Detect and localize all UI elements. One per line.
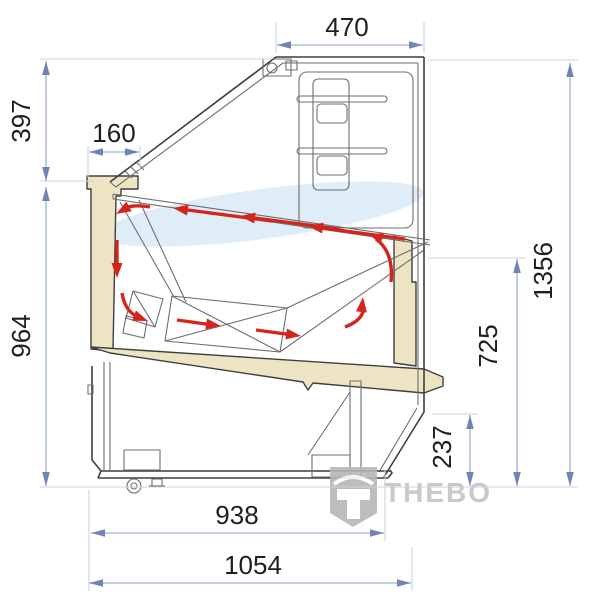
case-outline — [88, 57, 430, 493]
dim-upper-front-height-label: 397 — [6, 99, 36, 142]
airflow-arrow — [345, 296, 368, 327]
base-step-left — [124, 450, 160, 470]
watermark-t-stem — [347, 500, 360, 519]
support-brace — [308, 392, 350, 455]
airflow-arrow — [256, 328, 302, 341]
watermark-t-bar — [337, 489, 370, 500]
dim-front-ledge-label: 160 — [92, 118, 135, 148]
leveling-foot — [149, 479, 165, 486]
dim-total-depth-label: 1054 — [224, 550, 282, 580]
airflow-arrow — [177, 318, 222, 331]
dim-rear-worktop-height: 725 — [473, 259, 521, 486]
tub-rear-wall — [394, 236, 416, 366]
diagram-page: THEBO 470 397 — [0, 0, 600, 600]
shelf-bracket-box — [317, 104, 347, 123]
tub-bottom-slab — [91, 347, 443, 393]
dim-top-width: 470 — [277, 12, 423, 49]
glass-lid-inner — [116, 63, 283, 187]
dim-base-depth-label: 938 — [215, 500, 258, 530]
dim-total-height: 1356 — [528, 63, 574, 486]
fan-unit — [123, 291, 163, 338]
glass-tint — [97, 168, 427, 260]
shelf-bracket-bar — [297, 96, 387, 102]
dim-lower-front-height-label: 964 — [6, 314, 36, 357]
shelf-bracket-box — [317, 156, 347, 175]
evaporator-coil — [165, 296, 287, 352]
display-case-diagram: THEBO 470 397 — [0, 0, 600, 600]
dim-front-ledge: 160 — [89, 118, 139, 156]
dim-total-depth: 1054 — [89, 550, 411, 587]
watermark-brand-text: THEBO — [384, 477, 492, 508]
extension-lines — [40, 22, 578, 591]
dim-top-width-label: 470 — [325, 12, 368, 42]
support-post — [350, 381, 361, 477]
dim-rear-recess-height: 237 — [427, 415, 474, 486]
dim-rear-worktop-height-label: 725 — [473, 324, 503, 367]
dim-total-height-label: 1356 — [528, 242, 558, 300]
shelf-bracket-bar — [297, 148, 387, 154]
dim-rear-recess-height-label: 237 — [427, 425, 457, 468]
caster-wheel — [127, 479, 141, 493]
dim-lower-front-height: 964 — [6, 187, 50, 486]
glass-tint-area — [97, 168, 427, 260]
dim-upper-front-height: 397 — [6, 61, 50, 181]
rear-inner-chamfer — [379, 408, 417, 472]
